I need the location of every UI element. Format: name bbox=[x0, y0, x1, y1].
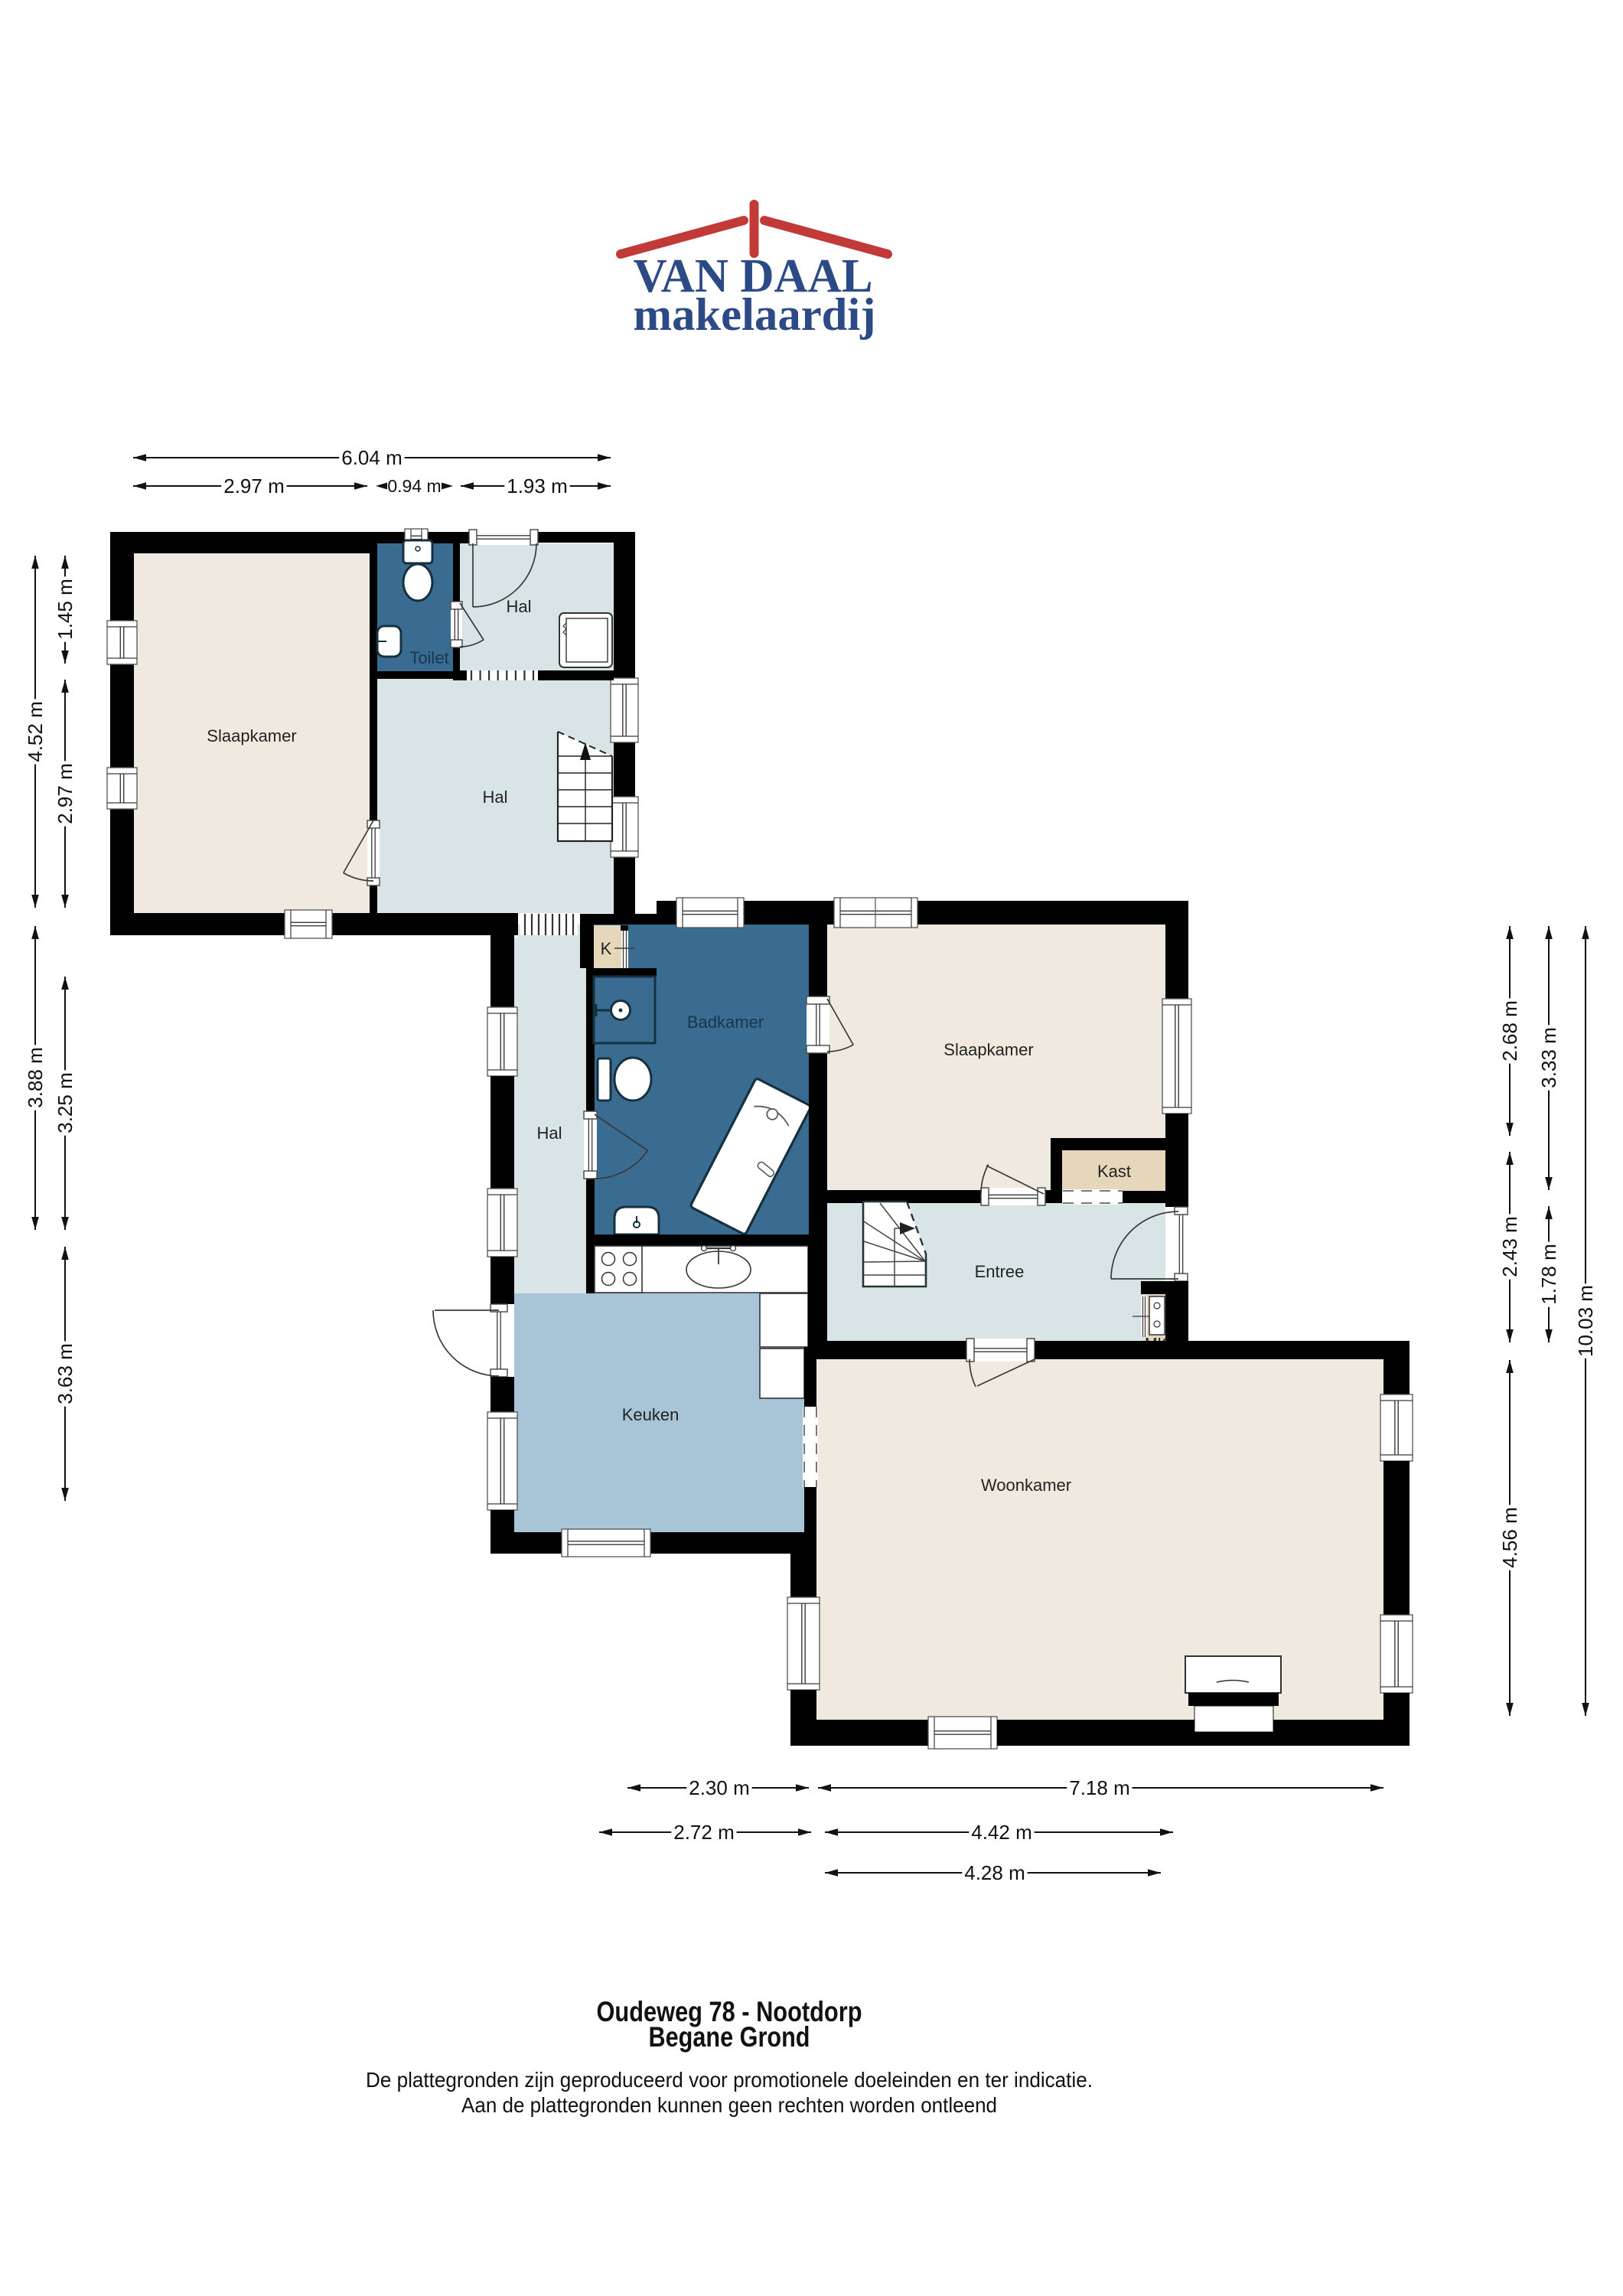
svg-text:Hal: Hal bbox=[482, 788, 507, 807]
svg-text:3.33 m: 3.33 m bbox=[1537, 1027, 1560, 1088]
svg-text:10.03 m: 10.03 m bbox=[1574, 1285, 1597, 1357]
svg-text:De plattegronden zijn geproduc: De plattegronden zijn geproduceerd voor … bbox=[366, 2068, 1093, 2092]
svg-text:2.43 m: 2.43 m bbox=[1498, 1216, 1521, 1277]
svg-text:Aan de plattegronden kunnen ge: Aan de plattegronden kunnen geen rechten… bbox=[461, 2093, 997, 2117]
svg-text:3.88 m: 3.88 m bbox=[24, 1047, 47, 1108]
svg-text:Kast: Kast bbox=[1097, 1162, 1131, 1181]
svg-text:6.04 m: 6.04 m bbox=[341, 446, 402, 469]
svg-text:2.68 m: 2.68 m bbox=[1498, 1000, 1521, 1062]
svg-text:0.94 m: 0.94 m bbox=[387, 476, 441, 496]
svg-text:1.45 m: 1.45 m bbox=[54, 579, 77, 640]
svg-text:Begane Grond: Begane Grond bbox=[649, 2021, 810, 2053]
svg-text:2.30 m: 2.30 m bbox=[689, 1776, 750, 1799]
svg-text:Woonkamer: Woonkamer bbox=[981, 1476, 1071, 1495]
svg-text:Toilet: Toilet bbox=[409, 648, 448, 667]
svg-text:Hal: Hal bbox=[506, 597, 531, 616]
svg-text:Entree: Entree bbox=[975, 1262, 1025, 1281]
svg-text:Keuken: Keuken bbox=[622, 1405, 680, 1424]
svg-text:4.52 m: 4.52 m bbox=[24, 701, 47, 762]
svg-text:makelaardij: makelaardij bbox=[634, 289, 876, 340]
svg-text:Slaapkamer: Slaapkamer bbox=[207, 726, 296, 745]
svg-text:3.25 m: 3.25 m bbox=[54, 1072, 77, 1133]
svg-text:4.42 m: 4.42 m bbox=[971, 1821, 1032, 1844]
svg-text:3.63 m: 3.63 m bbox=[54, 1343, 77, 1404]
svg-text:4.28 m: 4.28 m bbox=[964, 1861, 1025, 1884]
svg-text:2.97 m: 2.97 m bbox=[54, 763, 77, 824]
svg-text:1.78 m: 1.78 m bbox=[1537, 1244, 1560, 1305]
svg-text:2.72 m: 2.72 m bbox=[673, 1821, 735, 1844]
svg-text:K: K bbox=[601, 939, 612, 958]
svg-text:2.97 m: 2.97 m bbox=[223, 475, 285, 497]
svg-text:4.56 m: 4.56 m bbox=[1498, 1507, 1521, 1568]
svg-text:Badkamer: Badkamer bbox=[687, 1013, 764, 1032]
svg-text:7.18 m: 7.18 m bbox=[1069, 1776, 1130, 1799]
svg-text:Hal: Hal bbox=[536, 1124, 562, 1143]
svg-text:1.93 m: 1.93 m bbox=[507, 475, 568, 497]
svg-text:Slaapkamer: Slaapkamer bbox=[943, 1040, 1033, 1059]
